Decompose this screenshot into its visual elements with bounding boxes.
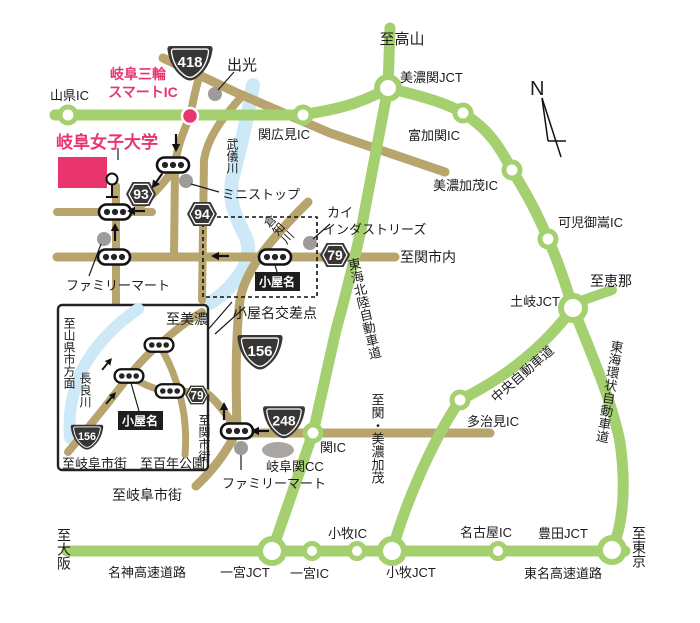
university-building [58,157,107,188]
route-number: 79 [190,389,204,402]
route-number: 79 [327,247,343,263]
minoseki-jct-label: 美濃関JCT [400,70,463,85]
ichinomiya-ic-marker [305,544,320,559]
gifu-womens-univ-label: 岐阜女子大学 [56,132,158,152]
koyana-label: 小屋名 [259,274,295,289]
minokamo-ic-marker [504,162,520,178]
seki-ic-marker [305,425,321,441]
route-number: 93 [133,186,149,202]
komaki-jct-label: 小牧JCT [386,565,436,580]
tajimi-ic-marker [452,392,468,408]
gifuseki-cc-label: 岐阜関CC [266,459,324,474]
inset-gifu-shigai-label: 至岐阜市街 [62,456,127,471]
route-number: 94 [194,206,210,222]
tokai-kanjo-east [388,88,623,550]
traffic-light-icon [98,250,130,265]
tokyo-label: 至東京 [631,526,647,568]
inset-yamagata-label: 至山県市方面 [62,317,76,389]
toyota-jct-label: 豊田JCT [538,526,588,541]
nagaragawa-label: 長良川 [78,372,92,408]
nagoya-ic-marker [491,544,506,559]
ministop-marker [179,174,193,188]
tomei-label: 東名高速道路 [524,566,602,581]
ichinomiya-jct-label: 一宮JCT [220,565,270,580]
ichinomiya-ic-label: 一宮IC [290,566,329,581]
kanimitake-ic-label: 可児御嵩IC [558,215,623,230]
koyana-kosaten-label: 小屋名交差点 [233,305,317,321]
ena-label: 至恵那 [590,273,632,289]
yamagata-ic-marker [60,107,76,123]
toyota-jct-marker [600,538,624,562]
route-number: 418 [177,54,202,71]
tokai-hokuriku-label: 東海北陸自動車道 [345,256,383,362]
toki-jct-label: 土岐JCT [510,294,560,309]
gifu-miwa-label-1: 岐阜三輪 [110,66,167,82]
meishin-label: 名神高速道路 [108,565,186,580]
sekihiromi-ic-marker [295,107,311,123]
traffic-light-icon [145,338,174,352]
toki-jct-marker [561,296,585,320]
traffic-light-icon [157,158,189,173]
kai-label-1: カイ [327,205,353,220]
komaki-ic-marker [350,544,365,559]
sekihiromi-ic-label: 関広見IC [258,127,310,142]
nagoya-ic-label: 名古屋IC [460,525,512,540]
kanimitake-ic-marker [540,231,556,247]
kai-label-2: インダストリーズ [323,222,426,237]
route-number: 156 [247,343,272,360]
ministop-label: ミニストップ [222,187,300,202]
komaki-ic-label: 小牧IC [328,526,367,541]
inset-seki-shigai-label: 至関市街 [197,414,211,462]
inset-mino-label: 至美濃 [166,311,208,327]
university [58,148,118,197]
access-map: 79 156 小屋名 至美濃 至山県市方面 長良川 至岐阜市街 至百年公園 至関… [0,0,700,623]
yamagata-ic-label: 山県IC [50,88,89,103]
koyana-label-group: 小屋名 [255,265,300,291]
inset-hyakunen-label: 至百年公園 [140,456,205,471]
route-number: 156 [78,431,96,443]
traffic-light-icon [221,424,253,439]
traffic-light-icon [259,250,291,265]
gifuseki-cc-marker [262,442,294,458]
tajimi-ic-label: 多治見IC [467,414,519,429]
miwa-smart-ic-marker [182,108,198,124]
seki-shinai-label: 至関市内 [400,249,456,265]
inset-koyana-label: 小屋名 [122,413,158,428]
tomikaseki-ic-marker [455,105,471,121]
minoseki-jct-marker [377,77,399,99]
osaka-label: 至大阪 [56,528,72,570]
route-93-badge: 93 [126,182,156,206]
route-number: 248 [272,413,296,429]
koyana-pointer [275,265,277,272]
familymart-bottom-label: ファミリーマート [222,476,326,491]
seki-minokamo-label: 至関・美濃加茂 [370,393,385,484]
familymart-left-marker [97,232,111,246]
mukigawa-label: 武儀川 [225,138,239,174]
gifu-miwa-label-2: スマートIC [108,84,178,100]
komaki-jct-marker [380,539,404,563]
idemitsu-label: 出光 [227,57,257,74]
gifu-shigai-label: 至岐阜市街 [112,487,182,503]
familymart-left-label: ファミリーマート [66,278,170,293]
familymart-bottom-marker [234,441,248,455]
traffic-light-icon [99,205,131,220]
idemitsu-marker [208,87,222,101]
compass-n-label: N [530,78,544,100]
traffic-light-icon [156,384,185,398]
compass: N [530,78,566,157]
minokamo-ic-label: 美濃加茂IC [433,178,498,193]
takayama-label: 至高山 [379,31,424,48]
inset-map: 79 156 小屋名 至美濃 至山県市方面 長良川 至岐阜市街 至百年公園 至関… [58,305,211,471]
route-156-badge: 156 [237,335,282,370]
seki-ic-label: 関IC [320,440,346,455]
route-94-badge: 94 [187,202,217,226]
tomikaseki-ic-label: 富加関IC [408,128,460,143]
ichinomiya-jct-marker [260,539,284,563]
